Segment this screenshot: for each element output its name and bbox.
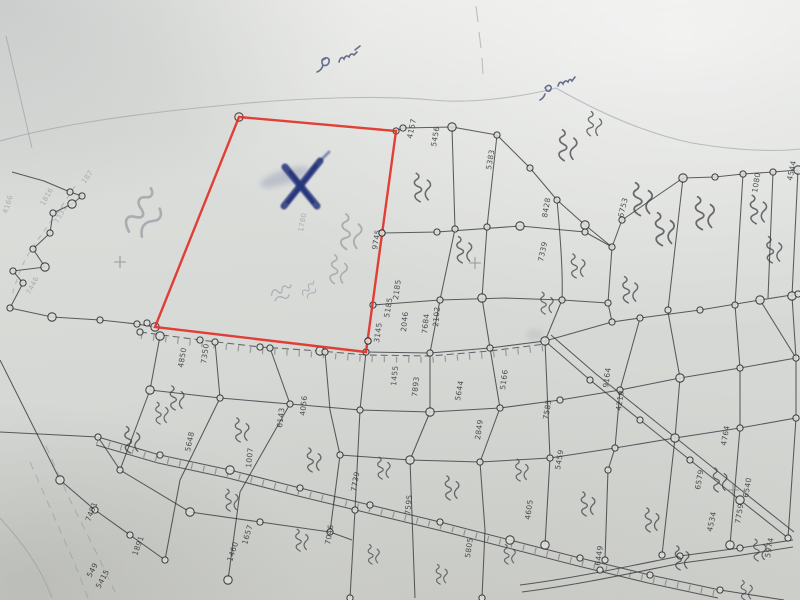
parcel-number: 7759: [733, 503, 745, 525]
survey-stone: [687, 457, 693, 463]
parcel-number: 1891: [130, 535, 145, 557]
script-mark: [367, 544, 380, 564]
survey-stone: [609, 244, 615, 250]
script-mark: [644, 508, 660, 533]
survey-stone: [557, 397, 563, 403]
parcel-number: 5166: [498, 369, 510, 390]
road-edge: [96, 445, 718, 598]
parcel-number: 5459: [553, 449, 565, 471]
survey-stone: [287, 401, 293, 407]
parcel-number: 2046: [399, 311, 410, 332]
script-mark: [740, 580, 753, 600]
parcel-number: 8428: [540, 197, 552, 219]
parcel-number: 7350: [199, 343, 211, 364]
survey-stone: [367, 502, 373, 508]
survey-stone: [427, 350, 433, 356]
plus-mark: [727, 484, 739, 496]
survey-stone: [95, 434, 101, 440]
survey-stone: [770, 169, 776, 175]
survey-stone: [127, 532, 133, 538]
survey-stone: [426, 408, 434, 416]
survey-stone: [697, 307, 703, 313]
script-mark: [270, 284, 294, 302]
survey-stone: [379, 230, 385, 236]
survey-stone: [337, 452, 343, 458]
parcel-number: 7595: [403, 494, 414, 515]
parcel-number: 7684: [420, 313, 431, 334]
survey-stone: [665, 307, 671, 313]
survey-stone: [297, 485, 303, 491]
survey-stone: [581, 221, 589, 229]
survey-stone: [637, 417, 643, 423]
survey-stone: [41, 263, 49, 271]
survey-stone: [437, 519, 443, 525]
script-mark: [300, 281, 320, 300]
parcel-number: 6143: [275, 407, 286, 428]
survey-stone: [134, 321, 140, 327]
boundary-line: [373, 298, 608, 305]
survey-stone: [637, 315, 643, 321]
parcel-boundaries: [0, 127, 798, 598]
script-mark: [584, 111, 603, 137]
handwriting-stroke: [558, 77, 575, 86]
pencil-contours: [0, 6, 800, 598]
parcel-number: 7331: [53, 204, 69, 225]
parcel-number: 1657: [240, 524, 254, 546]
survey-stone: [527, 165, 533, 171]
parcel-number: 1455: [389, 365, 400, 386]
survey-stone: [226, 466, 234, 474]
survey-stone: [756, 296, 764, 304]
survey-stone: [117, 467, 123, 473]
handwriting-stroke: [540, 85, 551, 100]
boundary-line: [165, 342, 220, 560]
survey-stone: [659, 552, 665, 558]
script-mark: [435, 564, 448, 584]
parcel-number: 4219: [614, 390, 626, 411]
survey-stone: [97, 317, 103, 323]
boundary-line: [12, 172, 70, 192]
parcel-number: 7446: [25, 275, 41, 296]
survey-stone: [365, 338, 371, 344]
survey-stone: [322, 349, 328, 355]
script-mark: [234, 418, 250, 443]
boundary-line: [608, 247, 612, 322]
parcel-number: 2185: [391, 279, 403, 300]
map-photo: 4157545653838428675345441080733997452185…: [0, 0, 800, 600]
cadastral-map: 4157545653838428675345441080733997452185…: [0, 0, 800, 600]
boundary-line: [480, 348, 500, 598]
parcel-number: 1780: [297, 212, 308, 232]
survey-stone: [487, 345, 493, 351]
survey-stone: [137, 329, 143, 335]
survey-stone: [559, 297, 565, 303]
survey-stone: [717, 587, 723, 593]
survey-stone: [737, 365, 743, 371]
survey-stone: [541, 541, 549, 549]
survey-stone: [67, 189, 73, 195]
survey-stone: [157, 452, 163, 458]
survey-stone: [785, 535, 791, 541]
survey-stone: [352, 507, 358, 513]
survey-stone: [577, 555, 583, 561]
script-mark: [514, 459, 528, 482]
survey-stone: [30, 246, 36, 252]
stone-chain: [10, 192, 155, 327]
script-mark: [570, 254, 586, 279]
survey-stone: [144, 320, 150, 326]
survey-stone: [20, 280, 26, 286]
parcel-number: 5185: [382, 297, 394, 319]
parcel-number: 4544: [785, 160, 798, 182]
parcel-number: 2102: [431, 306, 442, 327]
survey-stone: [793, 355, 799, 361]
survey-stone: [7, 305, 13, 311]
boundary-line: [735, 174, 743, 305]
survey-stone: [676, 374, 684, 382]
script-mark: [338, 214, 365, 252]
boundary-line: [60, 480, 165, 560]
parcel-number: 1007: [244, 447, 255, 468]
script-mark: [580, 492, 596, 517]
survey-stone: [737, 545, 743, 551]
survey-stone: [146, 386, 154, 394]
survey-stone: [587, 377, 593, 383]
script-annotations: [119, 111, 782, 600]
parcel-number: 5644: [453, 380, 465, 402]
parcel-number: 7339: [536, 241, 549, 263]
survey-stone: [156, 332, 164, 340]
script-mark: [455, 237, 472, 264]
script-mark: [224, 489, 238, 512]
boundary-line: [382, 226, 612, 247]
pencil-line: [0, 518, 52, 598]
script-mark: [413, 173, 432, 202]
road-edge: [520, 540, 793, 585]
survey-stone: [726, 541, 734, 549]
survey-stone: [494, 132, 500, 138]
survey-stone: [478, 294, 486, 302]
survey-stone: [477, 459, 483, 465]
survey-stone: [541, 337, 549, 345]
parcel-number: 4157: [405, 118, 418, 140]
boundary-line: [325, 352, 340, 532]
parcel-number: 2849: [473, 419, 485, 440]
survey-stone: [732, 302, 738, 308]
handwriting-stroke: [339, 46, 360, 62]
script-mark: [539, 292, 553, 315]
handwriting-stroke: [317, 58, 329, 72]
plus-mark: [469, 257, 481, 269]
survey-stone: [484, 224, 490, 230]
survey-stone: [357, 407, 363, 413]
parcel-number: 7046: [323, 524, 335, 546]
survey-stone: [56, 476, 64, 484]
pencil-line: [6, 36, 32, 148]
survey-stone: [597, 567, 603, 573]
survey-stone: [793, 415, 799, 421]
parcel-number: 5383: [484, 149, 496, 171]
survey-stone: [452, 226, 458, 232]
survey-stone: [186, 508, 194, 516]
parcel-number: 1460: [225, 541, 240, 563]
survey-stone: [400, 125, 406, 131]
survey-stone: [547, 455, 553, 461]
handwriting-top-center: [317, 46, 360, 72]
survey-stone: [605, 300, 611, 306]
script-mark: [154, 402, 168, 425]
parcel-number: 4534: [705, 511, 718, 533]
survey-stone: [79, 193, 85, 199]
survey-stone: [609, 319, 615, 325]
survey-stone: [448, 123, 456, 131]
boundary-line: [545, 341, 550, 545]
parcel-number: 187: [80, 169, 95, 185]
survey-stone: [197, 337, 203, 343]
boundary-line: [545, 200, 562, 341]
survey-numbers: 4157545653838428675345441080733997452185…: [1, 118, 798, 590]
survey-stone: [497, 405, 503, 411]
survey-stone: [47, 230, 53, 236]
script-mark: [306, 448, 322, 473]
parcel-number: 9164: [601, 367, 613, 388]
parcel-number: 4764: [719, 425, 731, 447]
survey-stone: [217, 395, 223, 401]
boundary-line: [768, 172, 773, 298]
survey-stone: [48, 313, 56, 321]
script-mark: [123, 427, 140, 454]
survey-stone: [554, 197, 560, 203]
parcel-number: 4166: [1, 194, 15, 215]
survey-stone: [68, 200, 76, 208]
boundary-line: [668, 178, 683, 310]
pencil-line: [556, 88, 800, 150]
parcel-number: 5974: [763, 537, 775, 559]
survey-stone: [712, 174, 718, 180]
parcel-number: 7739: [349, 471, 361, 493]
survey-stone: [257, 344, 263, 350]
boundary-line: [150, 358, 796, 412]
parcel-number: 4605: [523, 499, 535, 520]
parcel-number: 4850: [176, 347, 188, 369]
survey-stone: [647, 572, 653, 578]
parcel-number: 549: [85, 561, 100, 579]
boundary-line: [760, 300, 796, 358]
survey-stone: [267, 345, 273, 351]
pencil-line: [0, 88, 556, 141]
script-mark: [444, 476, 460, 501]
script-mark: [749, 195, 768, 224]
survey-stone: [212, 339, 218, 345]
parcel-number: 6540: [741, 477, 753, 499]
survey-stone: [347, 595, 353, 600]
script-mark: [376, 457, 390, 480]
parcel-number: 6579: [693, 469, 705, 491]
script-mark: [654, 213, 675, 247]
script-mark: [556, 130, 578, 163]
plus-mark: [114, 256, 126, 268]
script-mark: [119, 187, 170, 241]
survey-stones: [7, 113, 800, 600]
survey-stone: [582, 229, 588, 235]
roads: [96, 332, 794, 600]
survey-stone: [671, 434, 679, 442]
boundary-line: [605, 318, 640, 560]
blue-x-mark: [258, 152, 329, 206]
survey-stone: [516, 222, 524, 230]
survey-stone: [224, 576, 232, 584]
survey-stone: [679, 174, 687, 182]
script-mark: [632, 183, 653, 217]
boundary-line: [0, 432, 98, 437]
parcel-number: 5456: [429, 126, 441, 148]
survey-stone: [406, 456, 414, 464]
survey-stone: [10, 268, 16, 274]
survey-stone: [737, 425, 743, 431]
script-mark: [327, 255, 349, 286]
survey-stone: [437, 297, 443, 303]
survey-stone: [605, 467, 611, 473]
parcel-number: 1816: [39, 186, 56, 207]
parcel-number: 1080: [750, 172, 762, 194]
script-mark: [621, 277, 638, 304]
parcel-number: 6753: [616, 197, 630, 219]
boundary-line: [792, 170, 798, 296]
survey-stone: [257, 519, 263, 525]
boundary-line: [497, 135, 612, 247]
survey-stone: [795, 291, 800, 297]
survey-stone: [434, 229, 440, 235]
survey-stone: [479, 595, 485, 600]
script-mark: [169, 386, 185, 411]
survey-stone: [740, 171, 746, 177]
parcel-number: 4056: [298, 395, 309, 416]
parcel-number: 5805: [463, 537, 475, 558]
script-mark: [694, 197, 715, 231]
pencil-dash: [476, 6, 483, 74]
survey-stone: [612, 445, 618, 451]
parcel-number: 3145: [372, 322, 384, 343]
script-mark: [765, 237, 782, 264]
survey-stone: [162, 557, 168, 563]
script-mark: [294, 529, 308, 552]
parcel-number: 5648: [183, 431, 196, 453]
survey-stone: [506, 536, 514, 544]
parcel-number: 7893: [410, 376, 421, 397]
